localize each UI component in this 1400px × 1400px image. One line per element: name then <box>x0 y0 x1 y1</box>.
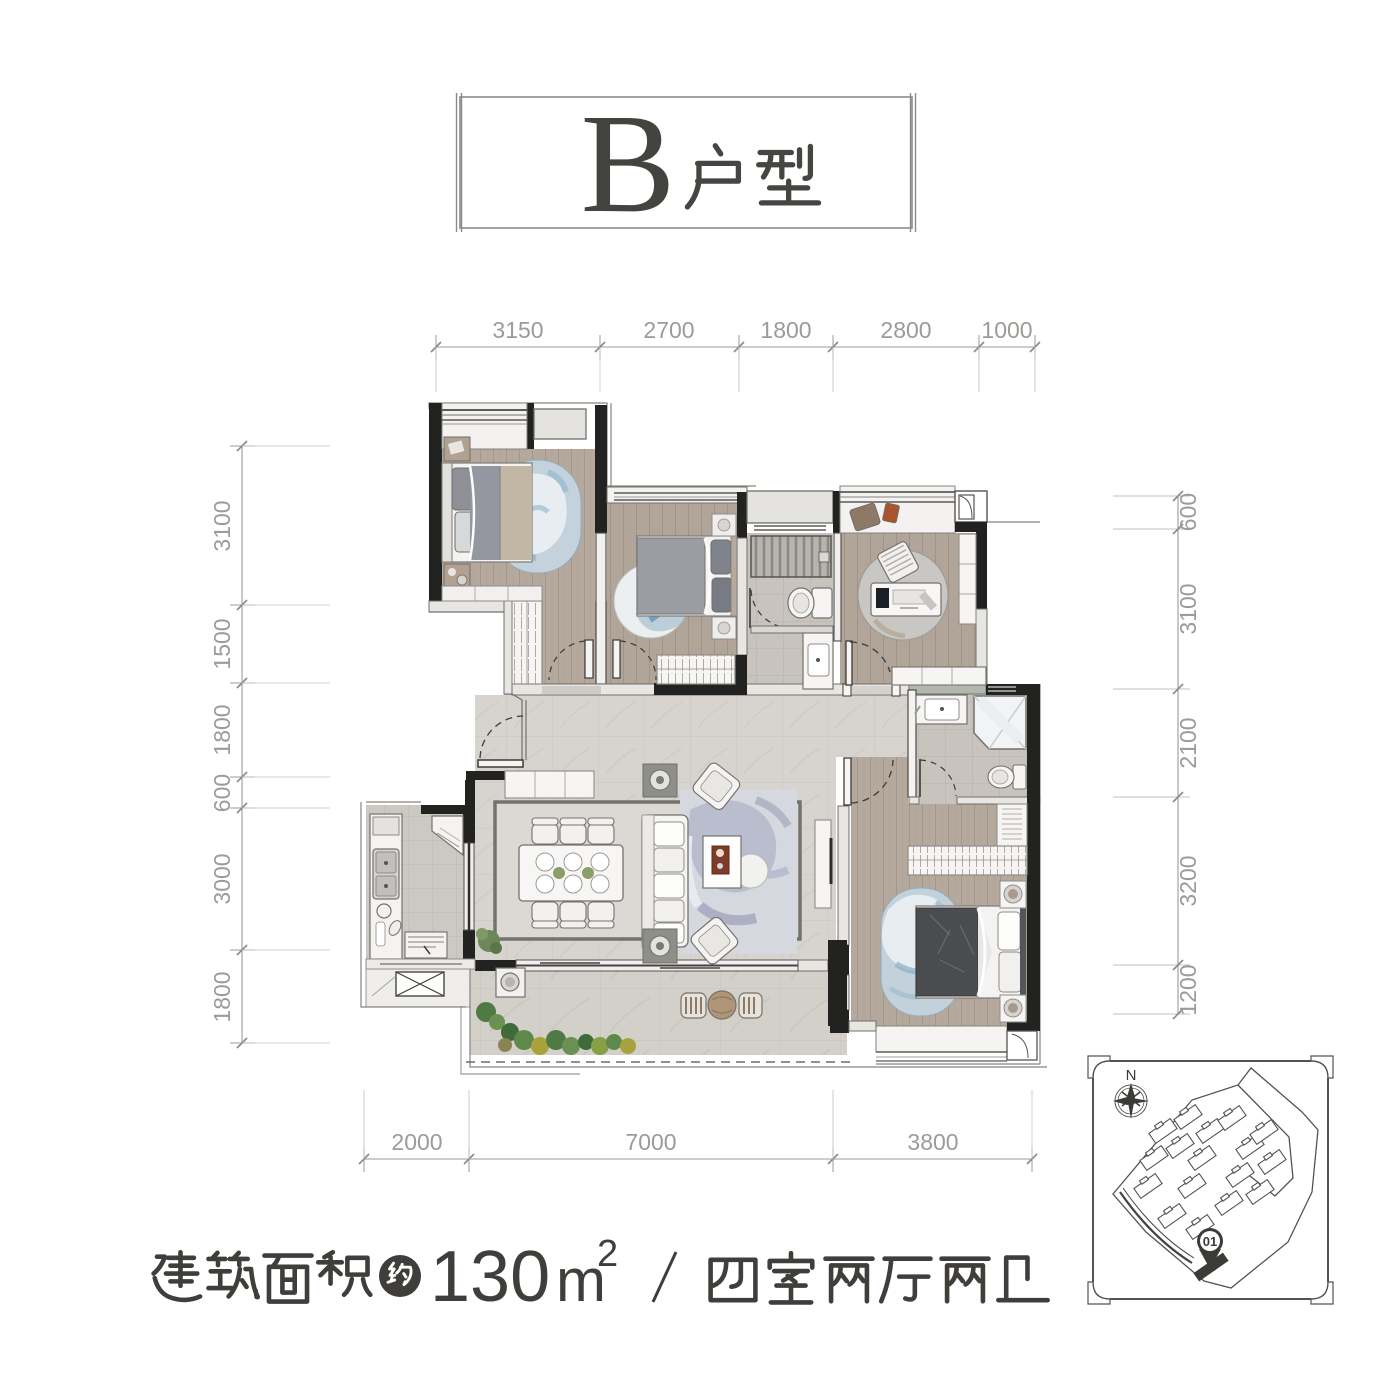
svg-text:01: 01 <box>1203 1234 1217 1249</box>
svg-text:1800: 1800 <box>209 971 235 1022</box>
svg-text:2: 2 <box>597 1233 618 1275</box>
svg-text:3150: 3150 <box>492 317 543 343</box>
svg-text:2000: 2000 <box>391 1129 442 1155</box>
svg-text:130: 130 <box>430 1237 550 1317</box>
svg-text:3200: 3200 <box>1175 855 1201 906</box>
svg-text:3100: 3100 <box>209 500 235 551</box>
svg-text:1800: 1800 <box>209 704 235 755</box>
svg-text:1200: 1200 <box>1175 964 1201 1015</box>
svg-text:2700: 2700 <box>643 317 694 343</box>
svg-text:3800: 3800 <box>907 1129 958 1155</box>
svg-text:1500: 1500 <box>209 618 235 669</box>
svg-text:2800: 2800 <box>880 317 931 343</box>
svg-text:600: 600 <box>1175 493 1201 531</box>
svg-text:3100: 3100 <box>1175 583 1201 634</box>
svg-text:600: 600 <box>209 774 235 812</box>
svg-text:1000: 1000 <box>981 317 1032 343</box>
svg-text:B: B <box>581 84 676 242</box>
svg-text:7000: 7000 <box>625 1129 676 1155</box>
svg-text:N: N <box>1126 1067 1137 1084</box>
svg-text:2100: 2100 <box>1175 717 1201 768</box>
svg-text:3000: 3000 <box>209 853 235 904</box>
svg-text:1800: 1800 <box>760 317 811 343</box>
